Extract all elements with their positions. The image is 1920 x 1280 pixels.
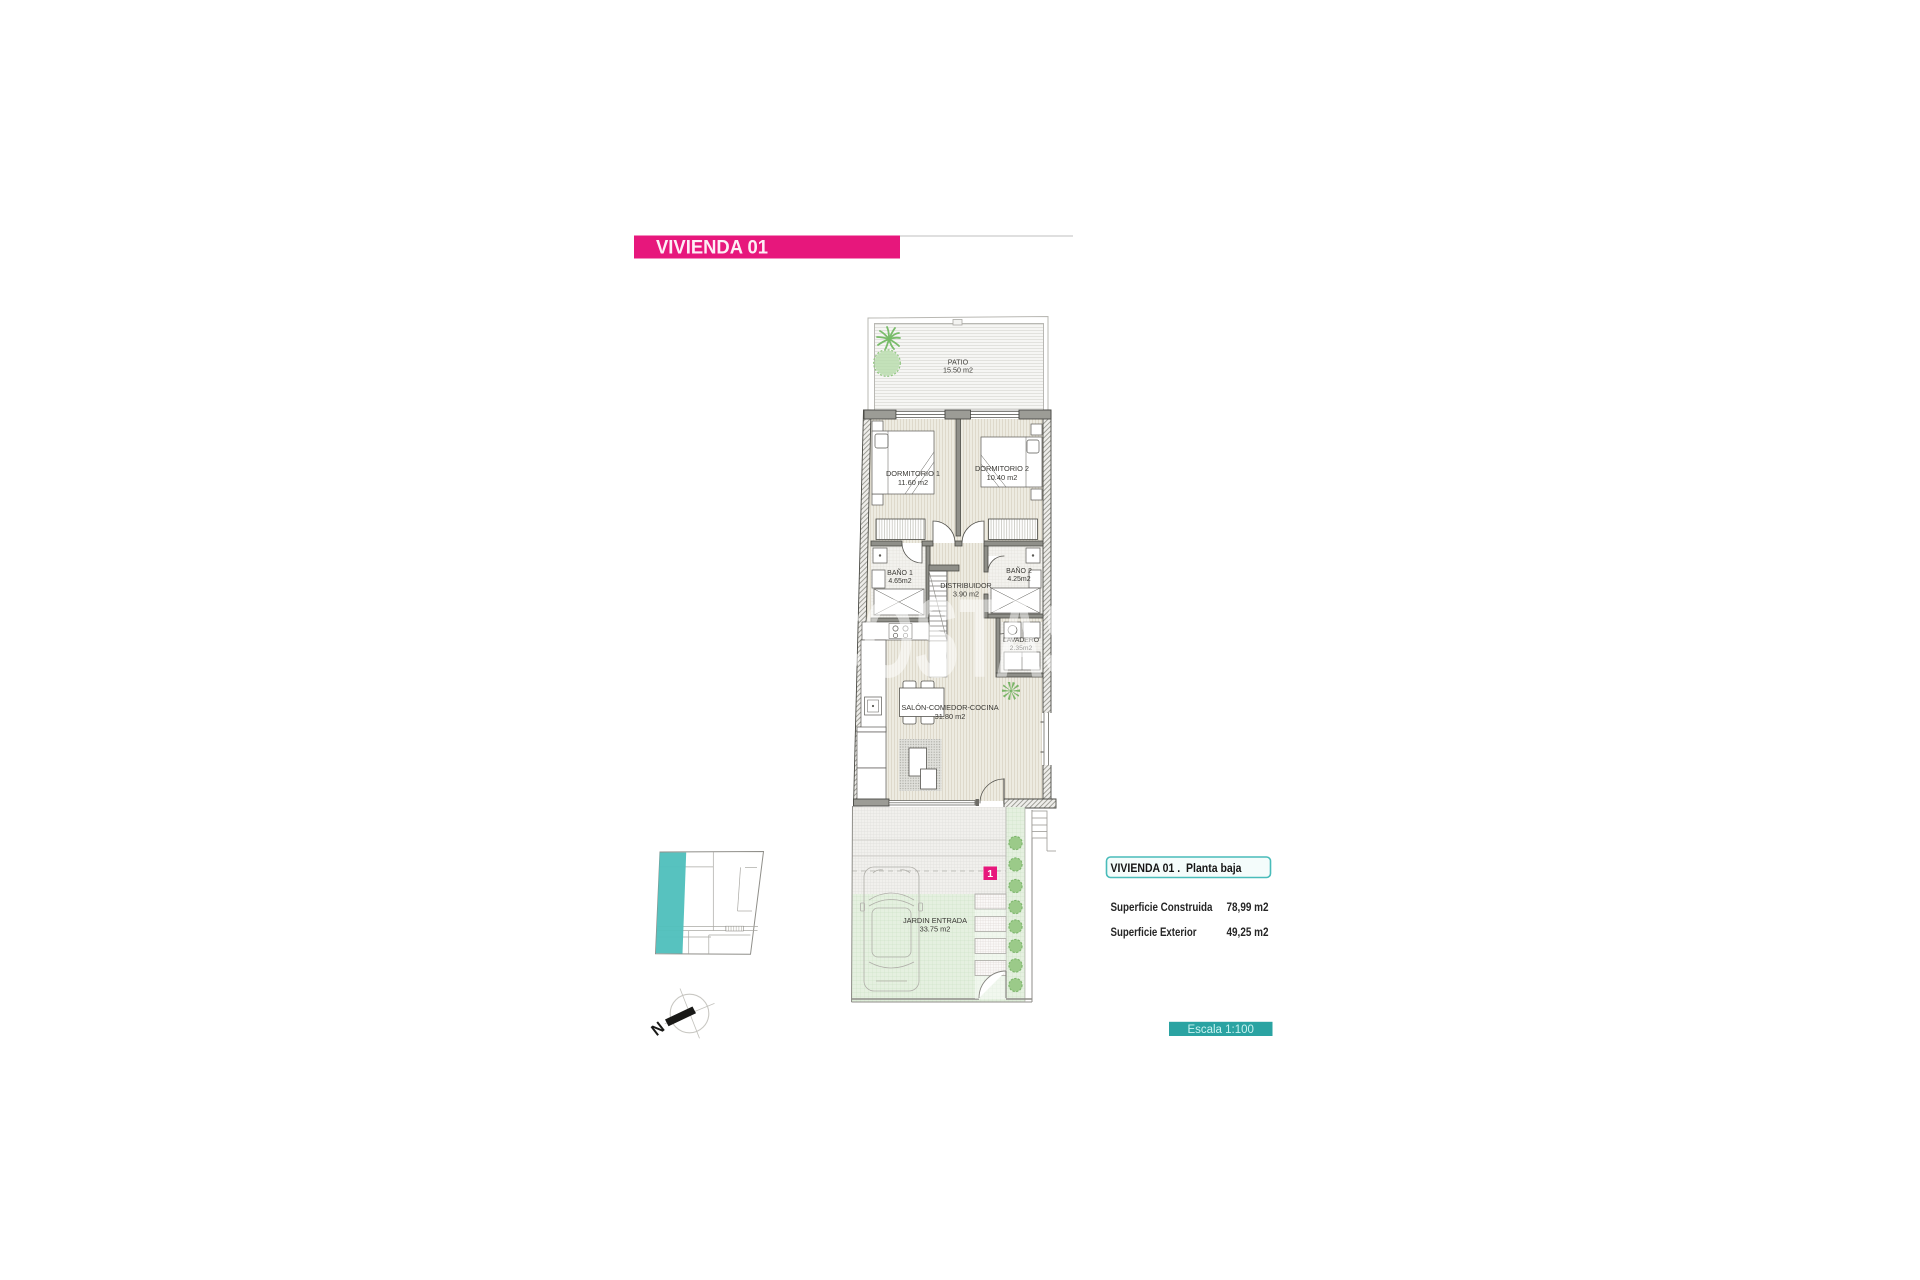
svg-text:33.75 m2: 33.75 m2 — [920, 925, 951, 934]
svg-text:SALÓN-COMEDOR-COCINA: SALÓN-COMEDOR-COCINA — [901, 703, 998, 712]
svg-text:DORMITORIO 2: DORMITORIO 2 — [975, 464, 1029, 473]
svg-text:1: 1 — [987, 868, 993, 880]
svg-text:Superficie Exterior: Superficie Exterior — [1111, 927, 1197, 939]
svg-text:Escala 1:100: Escala 1:100 — [1187, 1024, 1254, 1036]
svg-text:Superficie Construida: Superficie Construida — [1111, 902, 1214, 914]
svg-text:10.40 m2: 10.40 m2 — [987, 473, 1018, 482]
svg-text:BAÑO 2: BAÑO 2 — [1006, 566, 1032, 575]
svg-text:15.50 m2: 15.50 m2 — [943, 366, 973, 375]
svg-text:DORMITORIO 1: DORMITORIO 1 — [886, 469, 940, 478]
svg-text:COSTAS: COSTAS — [813, 575, 1088, 701]
svg-text:31.80 m2: 31.80 m2 — [935, 712, 966, 721]
svg-text:49,25 m2: 49,25 m2 — [1227, 927, 1269, 939]
svg-text:N: N — [648, 1019, 668, 1040]
svg-text:11.60 m2: 11.60 m2 — [898, 478, 928, 487]
svg-text:VIVIENDA 01 . Planta baja: VIVIENDA 01 . Planta baja — [1111, 863, 1243, 875]
svg-text:78,99 m2: 78,99 m2 — [1227, 902, 1269, 914]
svg-text:VIVIENDA 01: VIVIENDA 01 — [656, 237, 768, 259]
